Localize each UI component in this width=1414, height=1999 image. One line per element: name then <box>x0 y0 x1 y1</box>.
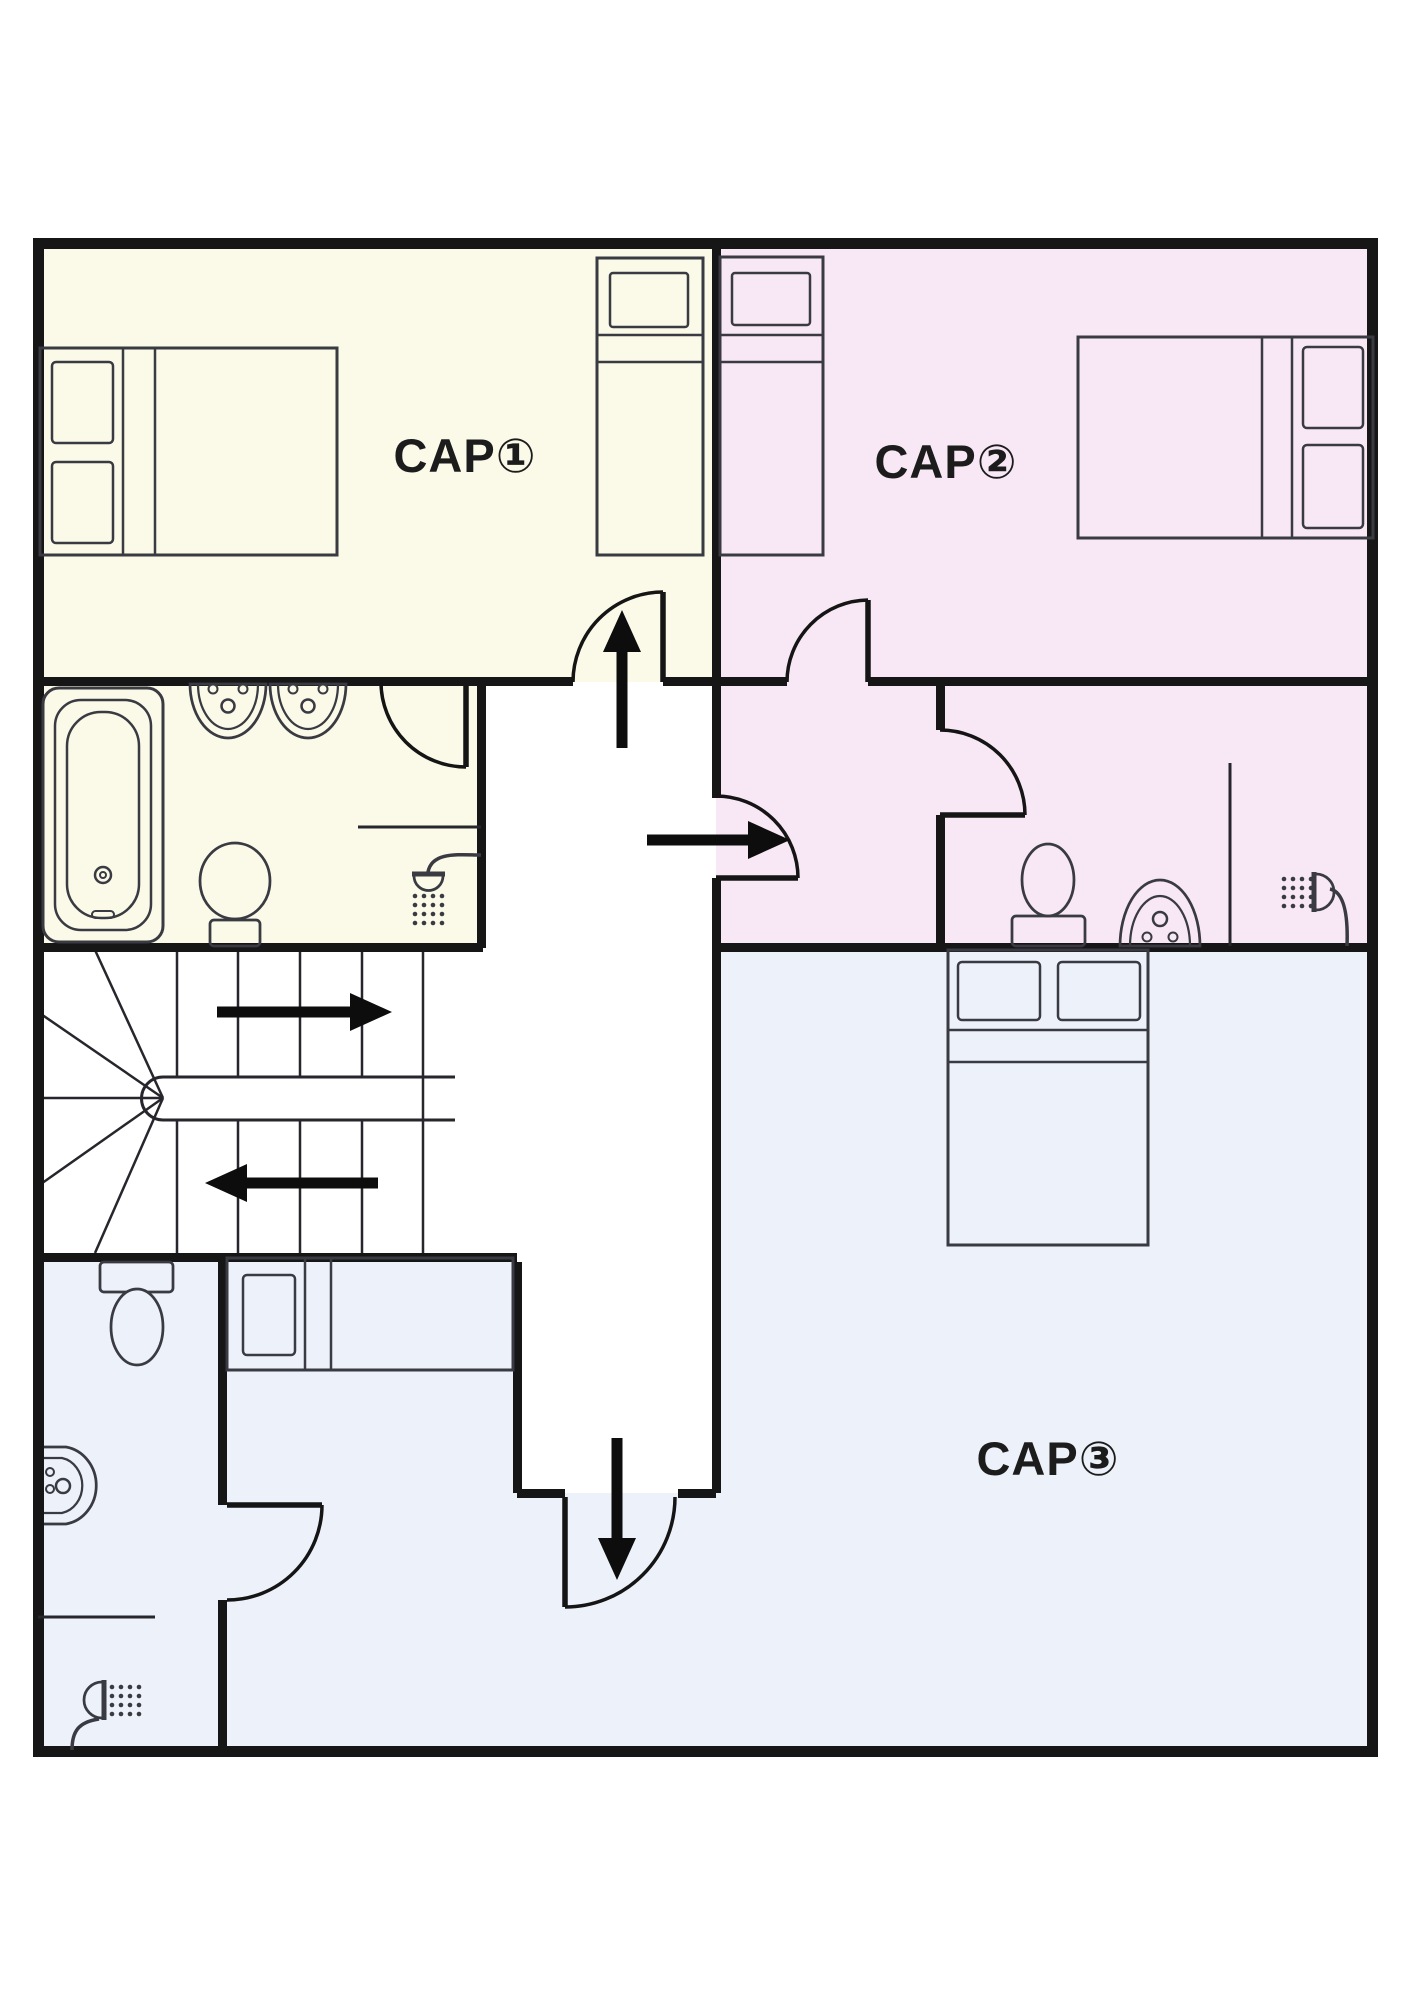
sink-tap-dot <box>209 685 218 694</box>
wall-hall-right <box>712 686 721 798</box>
wall-bathroom-right <box>477 686 486 948</box>
sink-tap-dot <box>239 685 248 694</box>
room-cap3 <box>716 948 1373 1752</box>
room-pink-a <box>716 682 940 948</box>
room-label-cap3: CAP③ <box>976 1431 1119 1487</box>
wall-hall-right <box>712 952 721 1493</box>
wall-bathroom-bottom-right <box>218 1600 227 1746</box>
toilet-bowl <box>200 843 270 919</box>
room-cap1 <box>38 243 716 682</box>
wall-hall-bottom <box>517 1489 565 1498</box>
room-label-cap1: CAP① <box>393 428 536 484</box>
wall-hall-right <box>712 878 721 943</box>
wall-pink-divider <box>936 686 945 730</box>
wall-outer-top <box>33 238 1378 249</box>
wall-pink-divider <box>936 815 945 943</box>
wall-mid-h1 <box>663 677 787 686</box>
floor-plan: CAP① CAP② CAP③ <box>0 0 1414 1999</box>
sink-tap-dot <box>319 685 328 694</box>
floor-plan-svg <box>0 0 1414 1999</box>
toilet-bowl <box>1022 844 1074 916</box>
wall-outer-bottom <box>33 1746 1378 1757</box>
sink-tap-dot <box>289 685 298 694</box>
wall-mid-h1 <box>868 677 1373 686</box>
wall-hall-bottom <box>678 1489 716 1498</box>
room-cap2 <box>716 243 1373 682</box>
room-label-cap2: CAP② <box>874 434 1017 490</box>
toilet-bowl <box>111 1289 163 1365</box>
